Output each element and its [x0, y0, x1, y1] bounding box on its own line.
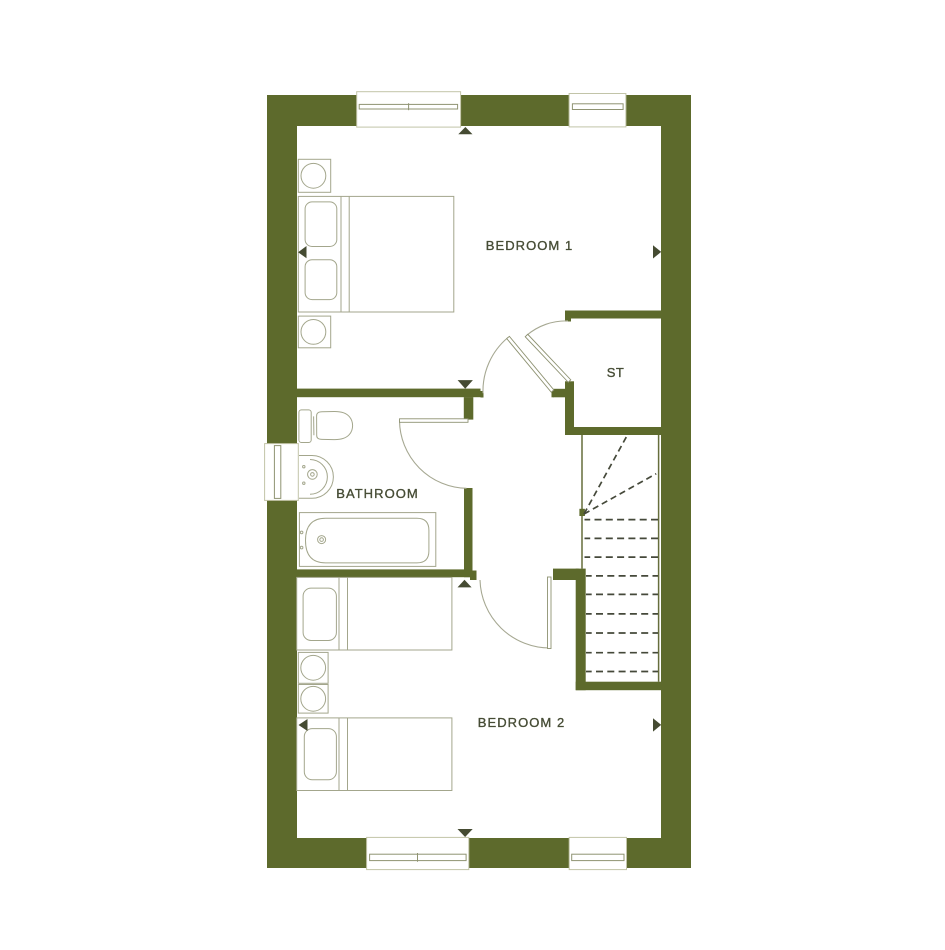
svg-text:BEDROOM 2: BEDROOM 2 [478, 715, 565, 730]
svg-text:ST: ST [607, 365, 625, 380]
svg-text:BATHROOM: BATHROOM [336, 486, 419, 501]
svg-text:BEDROOM 1: BEDROOM 1 [486, 238, 573, 253]
